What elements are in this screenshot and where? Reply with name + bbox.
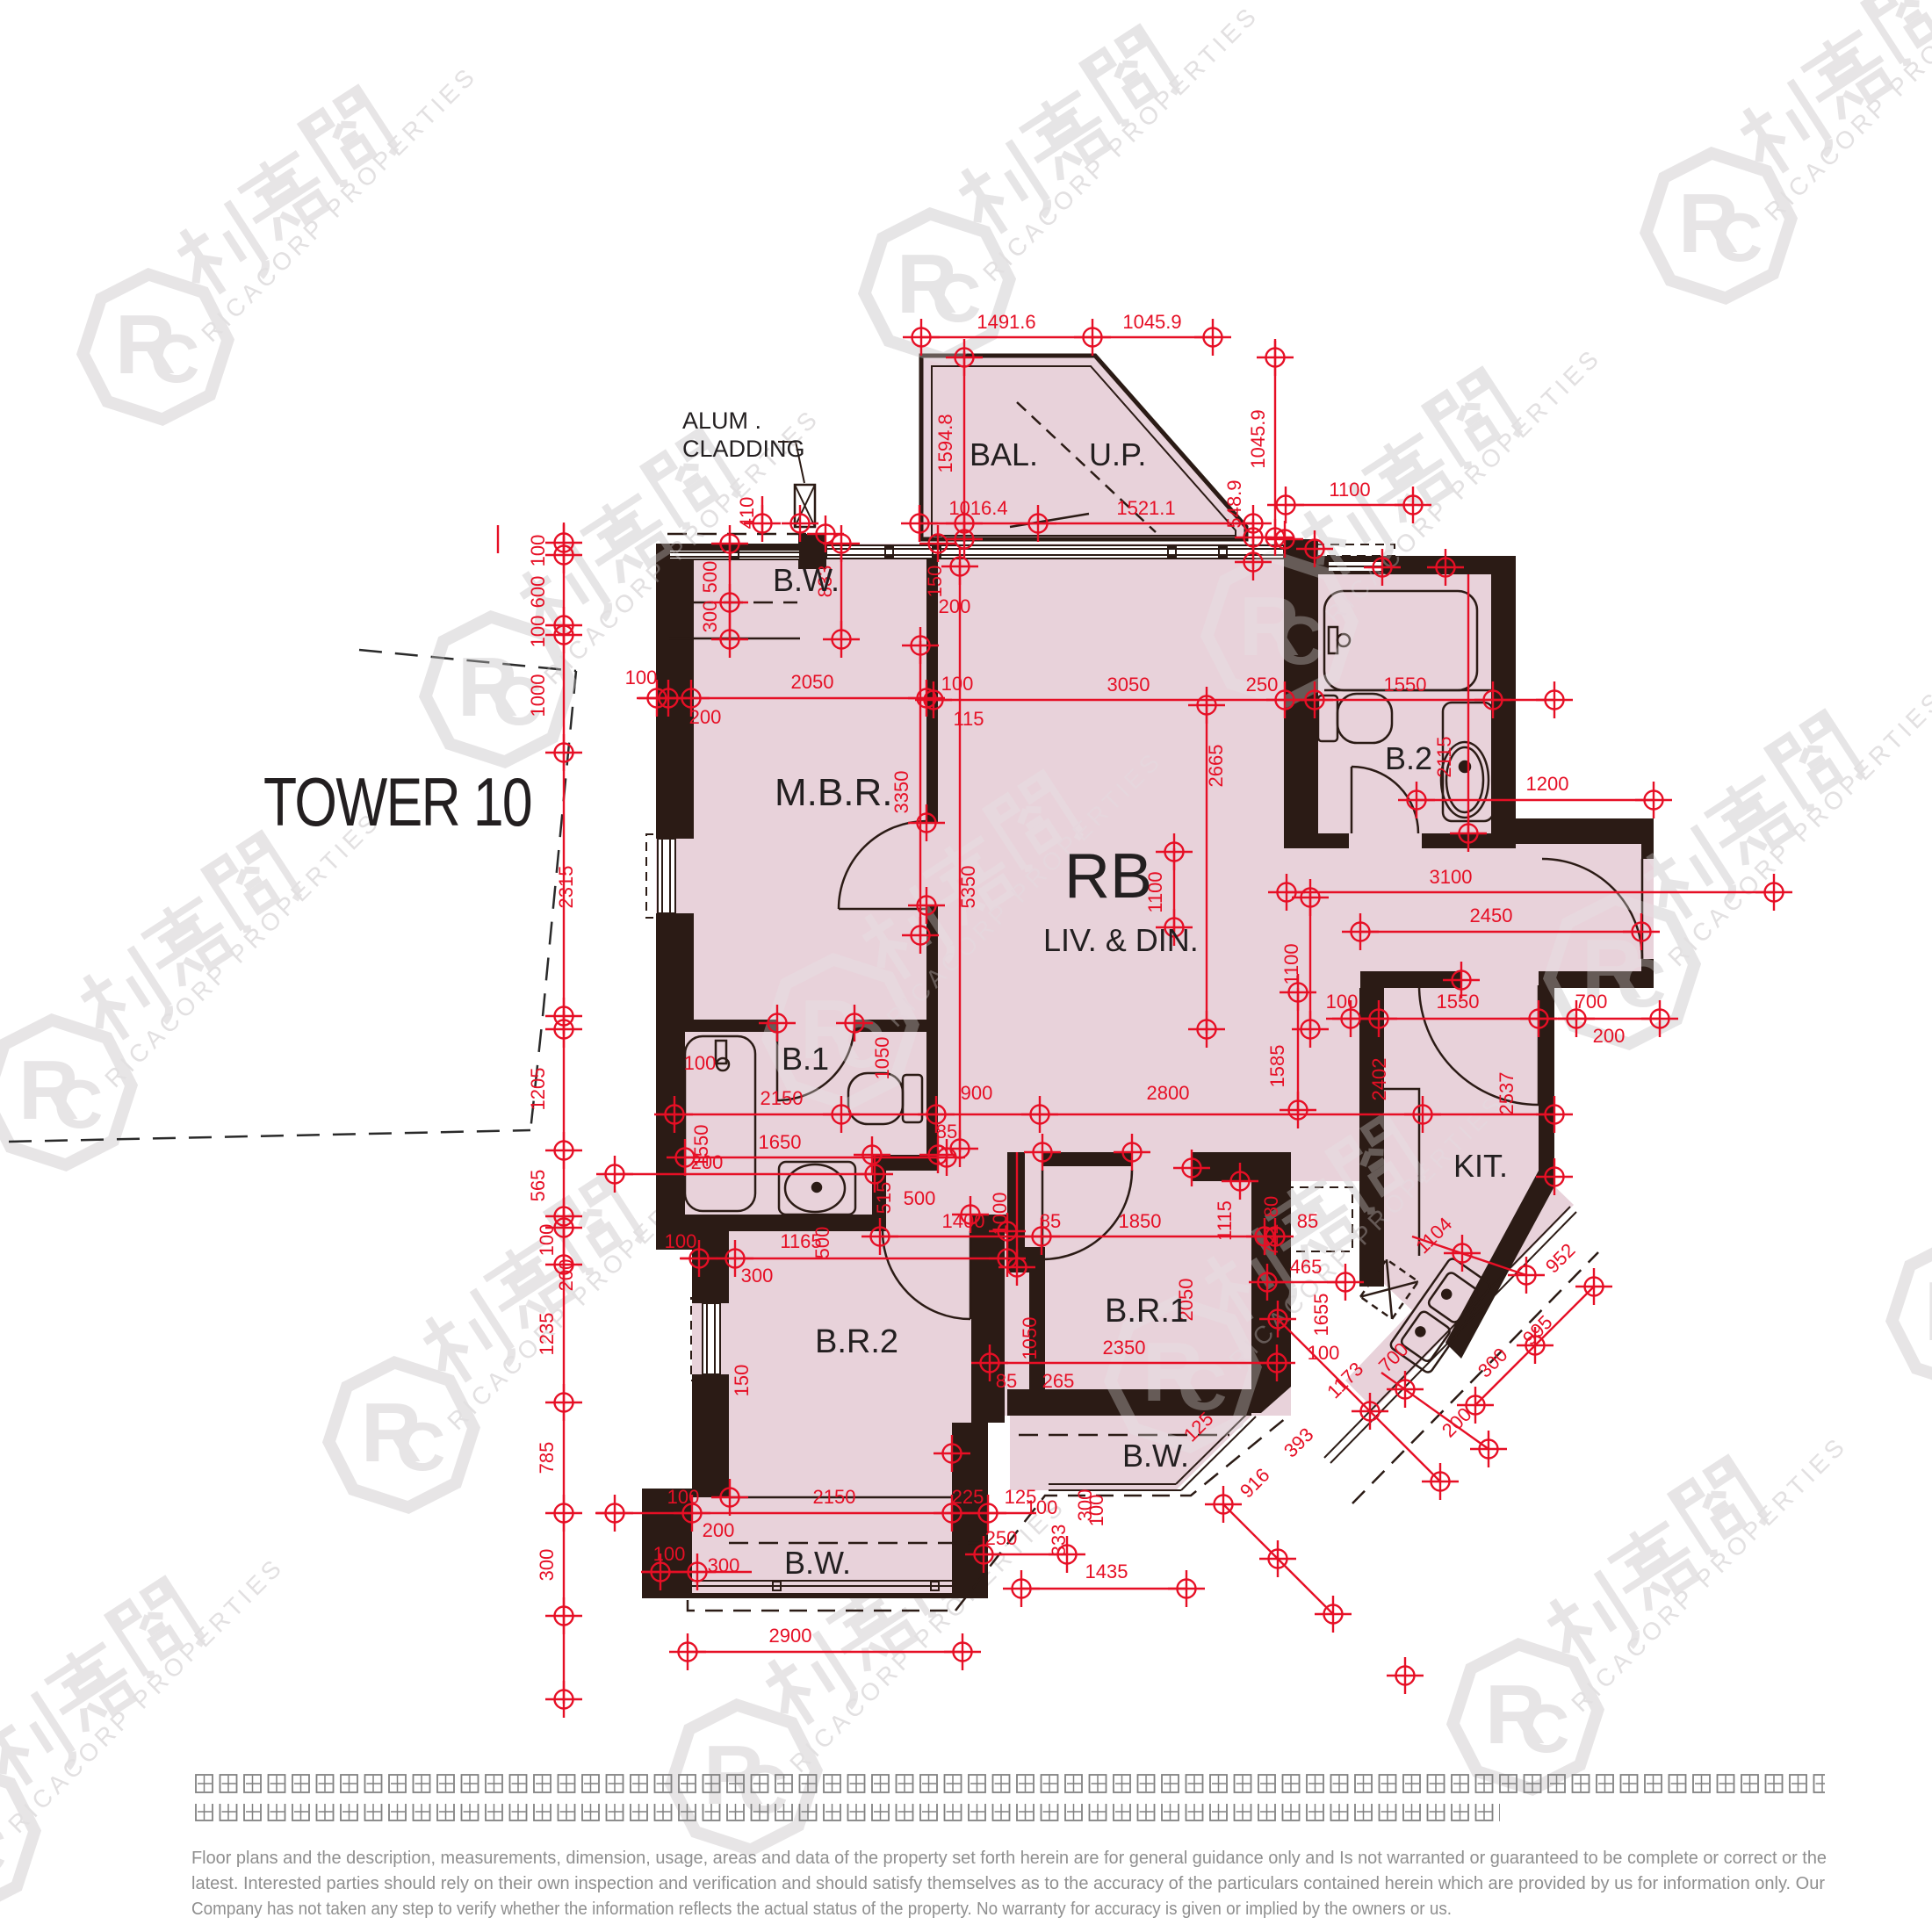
svg-text:1400: 1400 (942, 1210, 985, 1232)
svg-text:1000: 1000 (989, 1193, 1011, 1236)
svg-text:1594.8: 1594.8 (934, 414, 956, 472)
svg-text:2315: 2315 (555, 866, 577, 909)
svg-text:1016.4: 1016.4 (948, 497, 1007, 519)
svg-text:900: 900 (961, 1082, 993, 1104)
svg-text:100: 100 (1085, 1495, 1107, 1527)
svg-text:2800: 2800 (1147, 1082, 1190, 1104)
svg-text:1650: 1650 (759, 1131, 802, 1153)
svg-text:Floor plans and the descriptio: Floor plans and the description, measure… (191, 1848, 1827, 1868)
svg-text:2900: 2900 (769, 1625, 812, 1647)
svg-text:250: 250 (985, 1527, 1018, 1549)
svg-text:2537: 2537 (1496, 1072, 1517, 1115)
svg-text:100: 100 (941, 673, 974, 695)
svg-text:2150: 2150 (813, 1486, 856, 1508)
svg-text:latest. Interested parties sho: latest. Interested parties should rely o… (191, 1873, 1825, 1893)
svg-text:265: 265 (1042, 1370, 1075, 1392)
svg-text:LIV. & DIN.: LIV. & DIN. (1043, 922, 1199, 958)
svg-text:100: 100 (625, 667, 658, 688)
svg-text:B.2: B.2 (1385, 740, 1432, 776)
svg-text:1205: 1205 (527, 1068, 549, 1111)
svg-text:5350: 5350 (957, 866, 979, 909)
svg-text:600: 600 (527, 576, 549, 609)
svg-text:250: 250 (1246, 674, 1279, 696)
svg-text:RB: RB (1064, 841, 1152, 912)
svg-text:B.R.2: B.R.2 (815, 1323, 898, 1360)
svg-text:300: 300 (708, 1554, 740, 1576)
svg-text:2665: 2665 (1205, 745, 1227, 788)
svg-text:500: 500 (699, 561, 721, 594)
svg-text:100: 100 (1026, 1496, 1058, 1518)
svg-text:100: 100 (1308, 1342, 1340, 1364)
svg-text:1655: 1655 (1310, 1294, 1332, 1337)
svg-text:721: 721 (1260, 1224, 1282, 1257)
svg-text:300: 300 (536, 1549, 558, 1582)
svg-text:3050: 3050 (1107, 674, 1150, 696)
svg-text:U.P.: U.P. (1089, 436, 1146, 472)
svg-text:Company has not taken any step: Company has not taken any step to verify… (191, 1899, 1452, 1919)
svg-text:500: 500 (904, 1187, 936, 1209)
svg-text:1491.6: 1491.6 (977, 311, 1035, 333)
svg-text:3350: 3350 (890, 771, 912, 814)
svg-text:150: 150 (731, 1365, 753, 1397)
svg-text:80: 80 (1260, 1196, 1282, 1217)
svg-text:300: 300 (741, 1265, 774, 1287)
svg-text:1050: 1050 (871, 1037, 893, 1080)
svg-text:85: 85 (936, 1121, 957, 1143)
svg-text:1045.9: 1045.9 (1122, 311, 1181, 333)
svg-text:1585: 1585 (1266, 1045, 1288, 1088)
svg-text:2450: 2450 (1470, 905, 1513, 926)
svg-text:1550: 1550 (690, 1125, 712, 1168)
svg-text:785: 785 (536, 1442, 558, 1474)
svg-text:1050: 1050 (1019, 1317, 1041, 1360)
svg-text:KIT.: KIT. (1453, 1148, 1508, 1184)
svg-text:465: 465 (1290, 1256, 1323, 1278)
svg-text:515: 515 (873, 1182, 895, 1215)
svg-text:300: 300 (699, 601, 721, 633)
svg-text:1550: 1550 (1437, 991, 1480, 1013)
svg-text:100: 100 (667, 1486, 700, 1508)
svg-text:2350: 2350 (1103, 1337, 1146, 1359)
svg-text:3100: 3100 (1430, 866, 1473, 888)
svg-text:M.B.R.: M.B.R. (775, 771, 892, 814)
svg-text:333: 333 (1048, 1525, 1070, 1557)
svg-text:1100: 1100 (1329, 479, 1370, 501)
svg-text:1521.1: 1521.1 (1116, 497, 1175, 519)
svg-text:2150: 2150 (761, 1087, 804, 1109)
svg-text:410: 410 (736, 497, 758, 530)
svg-text:85: 85 (1297, 1210, 1318, 1232)
svg-text:100: 100 (527, 535, 549, 567)
svg-text:B.1: B.1 (782, 1041, 829, 1077)
svg-text:CLADDING: CLADDING (682, 436, 805, 462)
svg-text:1850: 1850 (1119, 1210, 1162, 1232)
svg-text:200: 200 (689, 706, 722, 728)
svg-text:200: 200 (555, 1259, 577, 1292)
svg-text:1200: 1200 (1526, 773, 1569, 795)
svg-text:200: 200 (939, 595, 971, 617)
svg-text:TOWER 10: TOWER 10 (263, 763, 531, 840)
svg-text:2050: 2050 (791, 671, 834, 693)
svg-text:1550: 1550 (1384, 674, 1427, 696)
svg-text:1045.9: 1045.9 (1247, 409, 1269, 468)
svg-text:100: 100 (684, 1052, 717, 1074)
svg-text:200: 200 (703, 1519, 735, 1541)
svg-text:700: 700 (1575, 991, 1608, 1013)
svg-text:100: 100 (665, 1230, 697, 1252)
svg-text:1100: 1100 (1280, 943, 1302, 984)
svg-text:B.W.: B.W. (784, 1545, 851, 1581)
svg-text:200: 200 (1593, 1025, 1626, 1047)
svg-text:1000: 1000 (527, 674, 549, 717)
svg-text:BAL.: BAL. (970, 436, 1038, 472)
svg-text:B.W.: B.W. (1122, 1438, 1189, 1474)
svg-text:115: 115 (953, 708, 984, 730)
svg-text:1435: 1435 (1085, 1561, 1128, 1582)
svg-text:1235: 1235 (536, 1313, 558, 1356)
svg-text:2115: 2115 (1433, 736, 1455, 777)
svg-text:100: 100 (527, 616, 549, 648)
svg-text:225: 225 (952, 1486, 984, 1508)
svg-text:85: 85 (996, 1370, 1017, 1392)
svg-text:100: 100 (1326, 991, 1359, 1013)
svg-text:85: 85 (1040, 1210, 1061, 1232)
svg-text:B.R.1: B.R.1 (1105, 1293, 1188, 1330)
svg-text:B.W.: B.W. (773, 562, 840, 598)
svg-text:548.9: 548.9 (1223, 479, 1245, 528)
svg-text:2402: 2402 (1368, 1058, 1390, 1101)
svg-text:565: 565 (527, 1170, 549, 1202)
svg-text:500: 500 (811, 1227, 833, 1259)
svg-text:150: 150 (924, 566, 946, 598)
svg-text:1115: 1115 (1214, 1200, 1236, 1241)
svg-text:100: 100 (536, 1224, 558, 1257)
svg-text:ALUM .: ALUM . (682, 407, 761, 434)
svg-text:100: 100 (653, 1543, 686, 1565)
